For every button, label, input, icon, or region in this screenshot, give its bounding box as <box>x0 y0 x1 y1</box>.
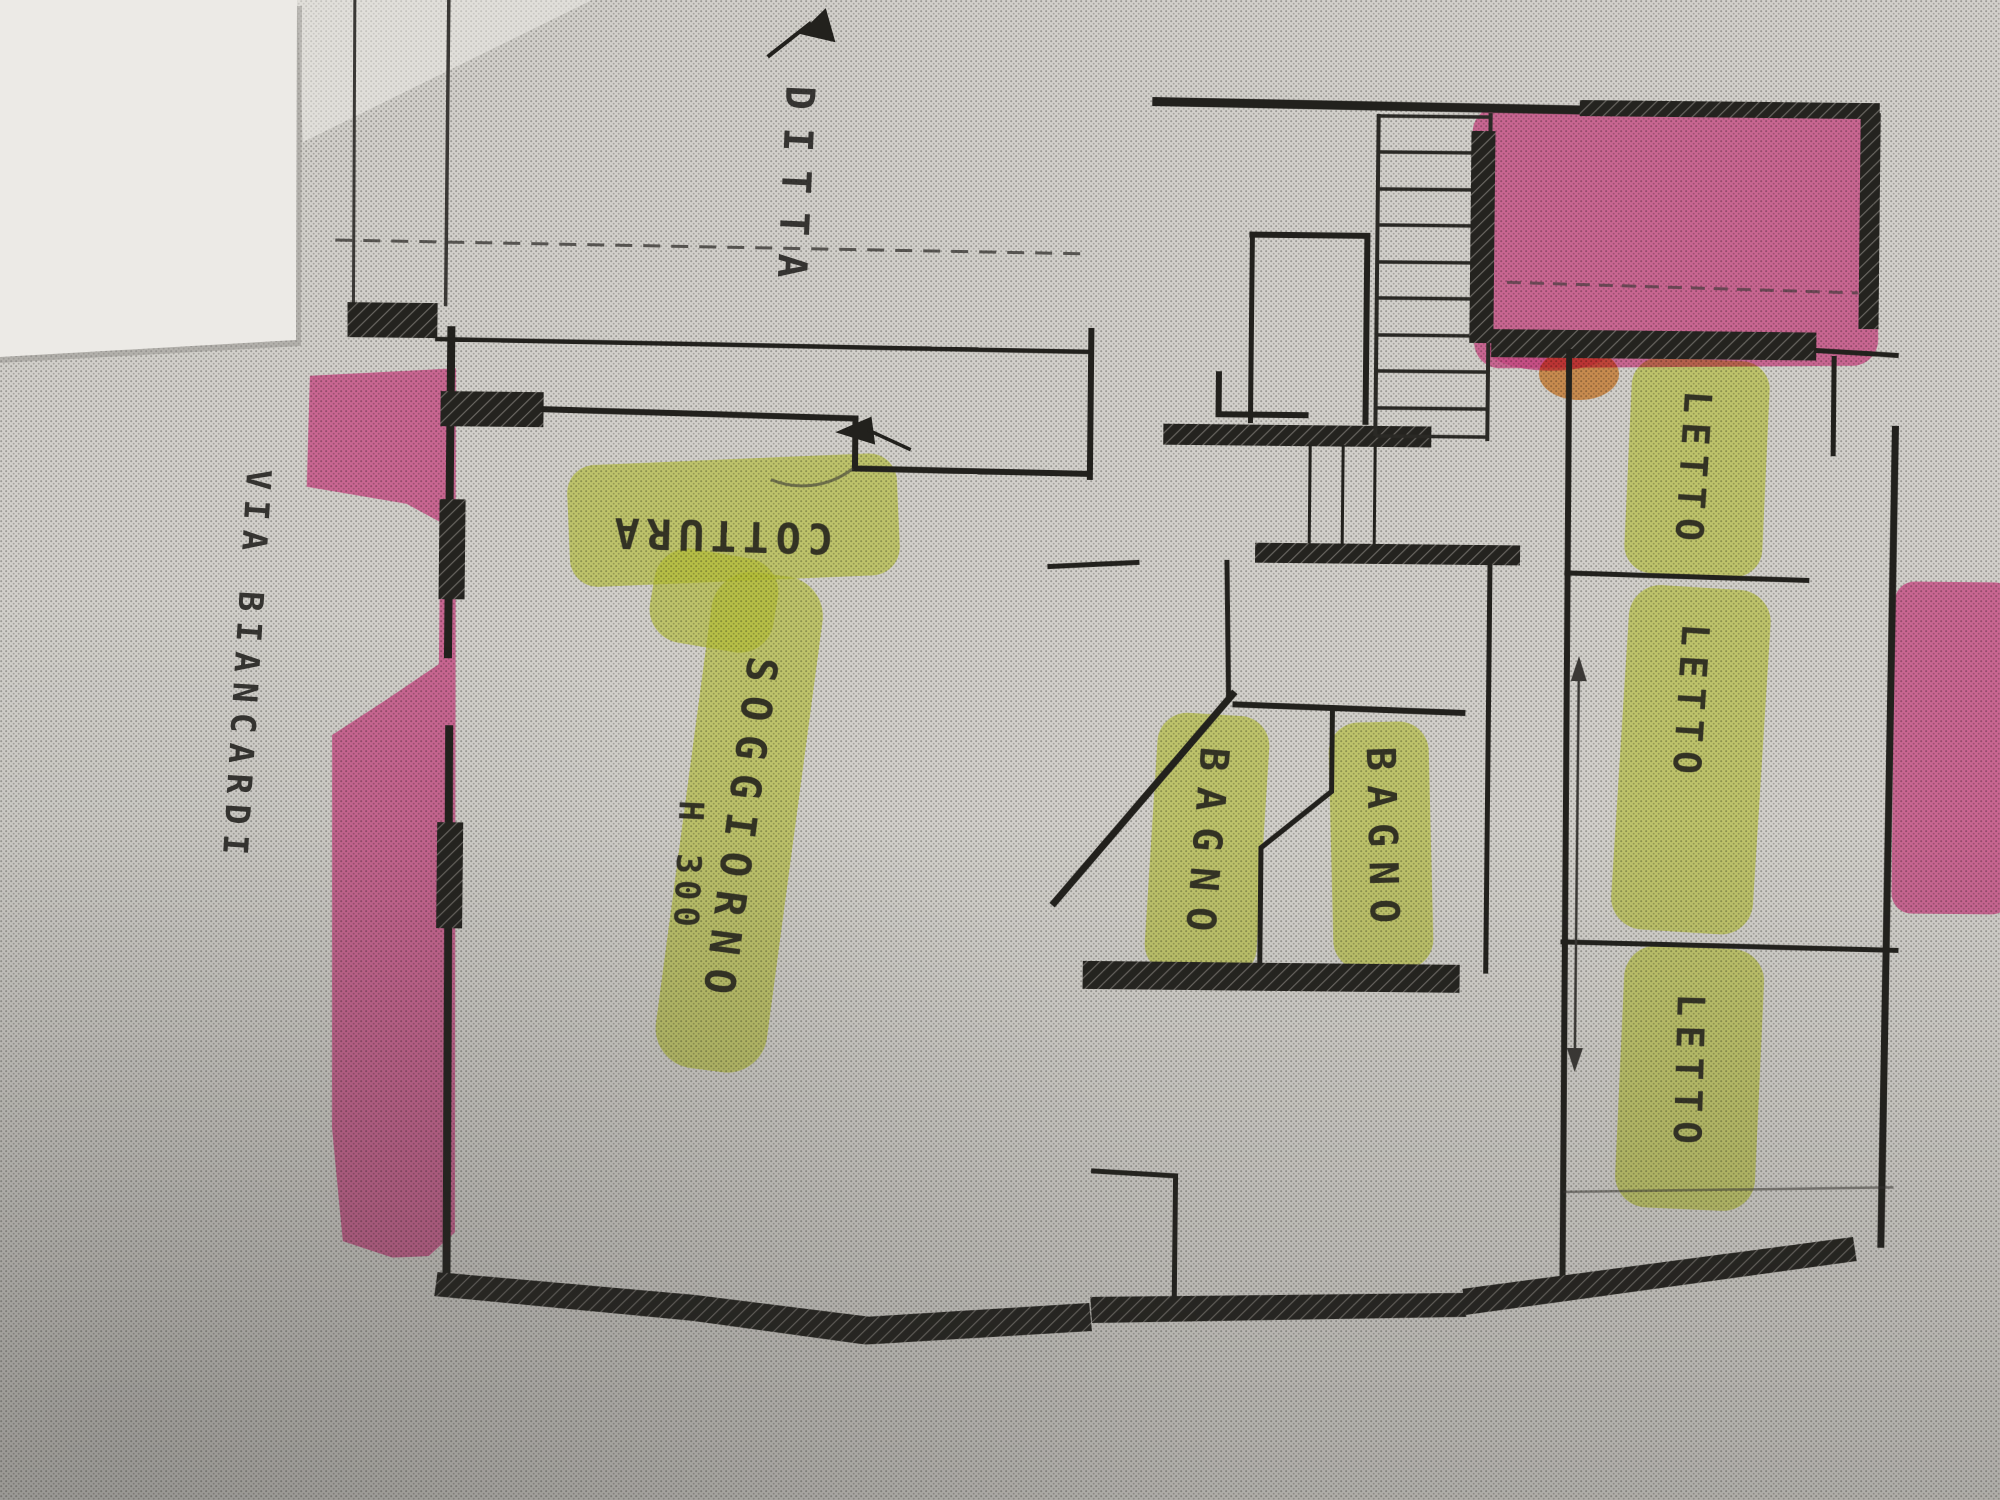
floor-plan-photo: COTTURA SOGGIORNO H 300 BAGNO BAGNO LETT… <box>0 0 2000 1500</box>
corner-shade <box>0 0 2000 1500</box>
